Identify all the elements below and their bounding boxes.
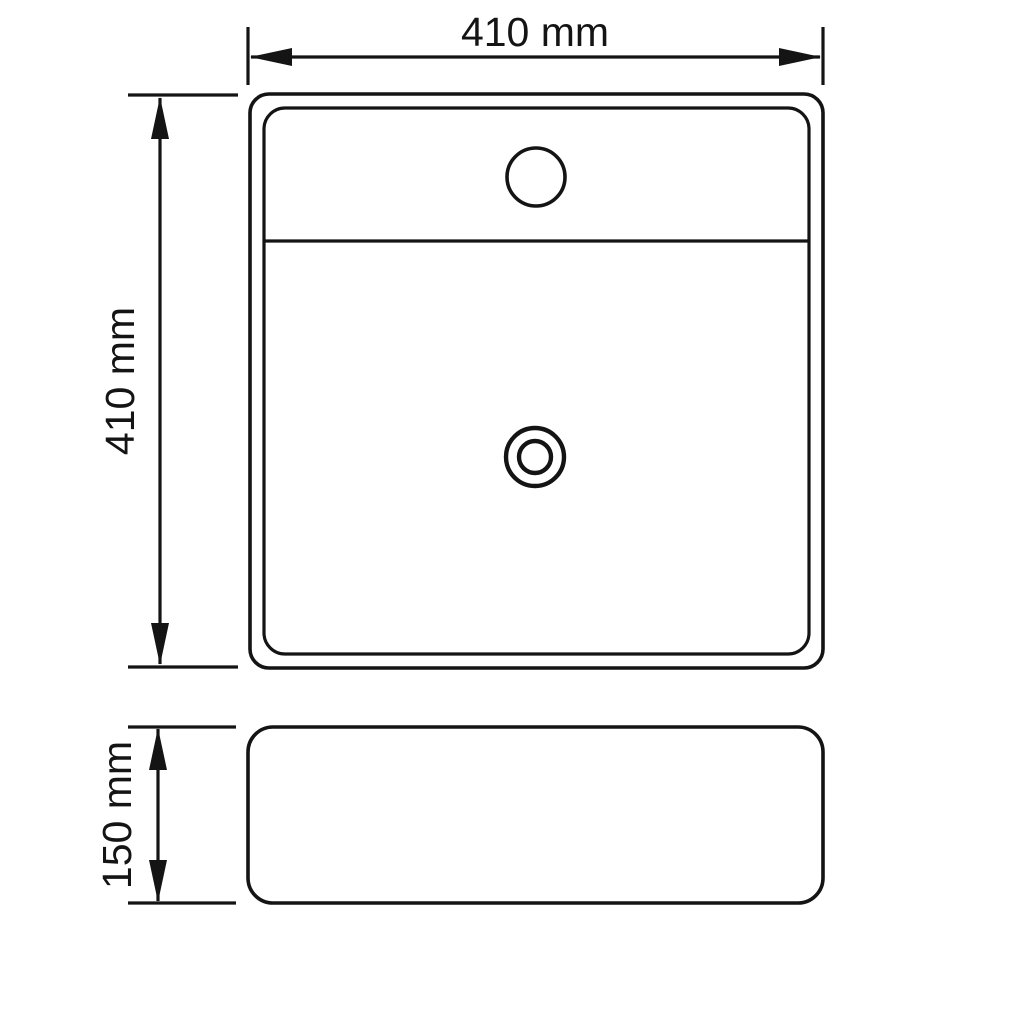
depth-arrow-top xyxy=(151,97,169,139)
faucet-hole xyxy=(507,148,565,206)
drain-hole-outer xyxy=(506,428,564,486)
basin-outer-outline xyxy=(250,94,823,668)
width-dimension: 410 mm xyxy=(248,9,823,85)
width-arrow-right xyxy=(779,48,821,66)
height-dimension-label: 150 mm xyxy=(94,741,140,889)
height-arrow-bottom xyxy=(149,860,167,902)
height-dimension: 150 mm xyxy=(94,727,236,903)
width-arrow-left xyxy=(250,48,292,66)
drain-hole-inner xyxy=(519,441,551,473)
depth-arrow-bottom xyxy=(151,623,169,665)
basin-inner-rim xyxy=(264,108,809,654)
basin-top-view xyxy=(250,94,823,668)
width-dimension-label: 410 mm xyxy=(461,9,609,55)
height-arrow-top xyxy=(149,728,167,770)
washbasin-technical-drawing: 410 mm 410 mm 150 mm xyxy=(0,0,1024,1024)
drawing-canvas: 410 mm 410 mm 150 mm xyxy=(0,0,1024,1024)
depth-dimension: 410 mm xyxy=(97,95,238,667)
basin-front-view xyxy=(248,727,823,903)
depth-dimension-label: 410 mm xyxy=(97,307,143,455)
basin-front-outline xyxy=(248,727,823,903)
